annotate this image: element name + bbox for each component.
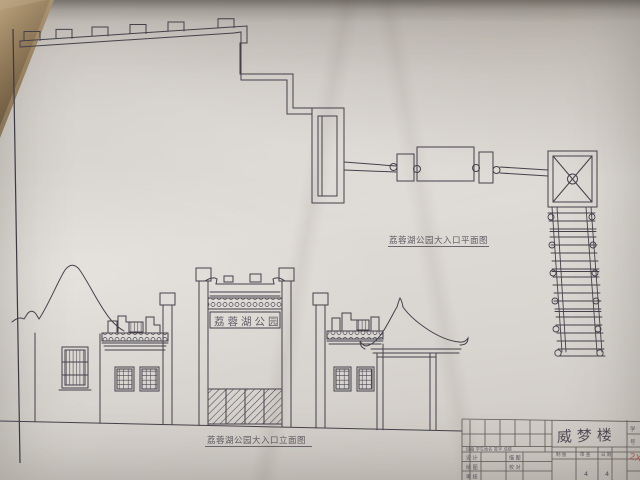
elevation-view (0, 265, 468, 431)
pavilion (360, 298, 468, 430)
drawing-svg: 荔蓉湖公园大入口平面图 (0, 0, 640, 480)
sub-label-plot: 制 图 (556, 451, 567, 458)
sub-label-audit: 审 查 (580, 451, 591, 458)
side-char-2: 号 (630, 439, 636, 446)
row-label-review: 审 核 (466, 474, 478, 480)
red-mark: 2X (628, 452, 640, 464)
row-label-draw: 绘 图 (466, 464, 478, 471)
plan-walkway (548, 207, 605, 356)
gate (160, 268, 328, 428)
row-label-check: 校 对 (509, 464, 521, 471)
house (12, 265, 124, 423)
sub-label-date: 日 期 (601, 452, 612, 458)
plan-view (20, 19, 605, 356)
wall-right (327, 313, 383, 429)
plan-pavilion (548, 151, 597, 207)
bottom-mark-2: 4 (605, 470, 609, 478)
gate-sign: 荔蓉湖公园 (214, 315, 282, 328)
plan-corridor (344, 147, 548, 183)
header-row: 班级 学生姓名 签字 成绩 (466, 446, 513, 453)
plan-gate (312, 108, 344, 203)
row-label-trace: 描 图 (509, 455, 521, 462)
row-label-design: 设 计 (466, 455, 478, 462)
wall-left (102, 316, 168, 391)
plan-title: 荔蓉湖公园大入口平面图 (389, 235, 488, 246)
photo-background: 荔蓉湖公园大入口平面图 (0, 0, 640, 480)
side-char-1: 学 (630, 425, 636, 433)
plan-wall (20, 19, 312, 114)
border-line (13, 29, 20, 463)
project-name: 威梦楼 (557, 426, 618, 446)
bottom-mark-1: 4 (584, 470, 588, 478)
elevation-title: 荔蓉湖公园大入口立面图 (207, 435, 306, 446)
